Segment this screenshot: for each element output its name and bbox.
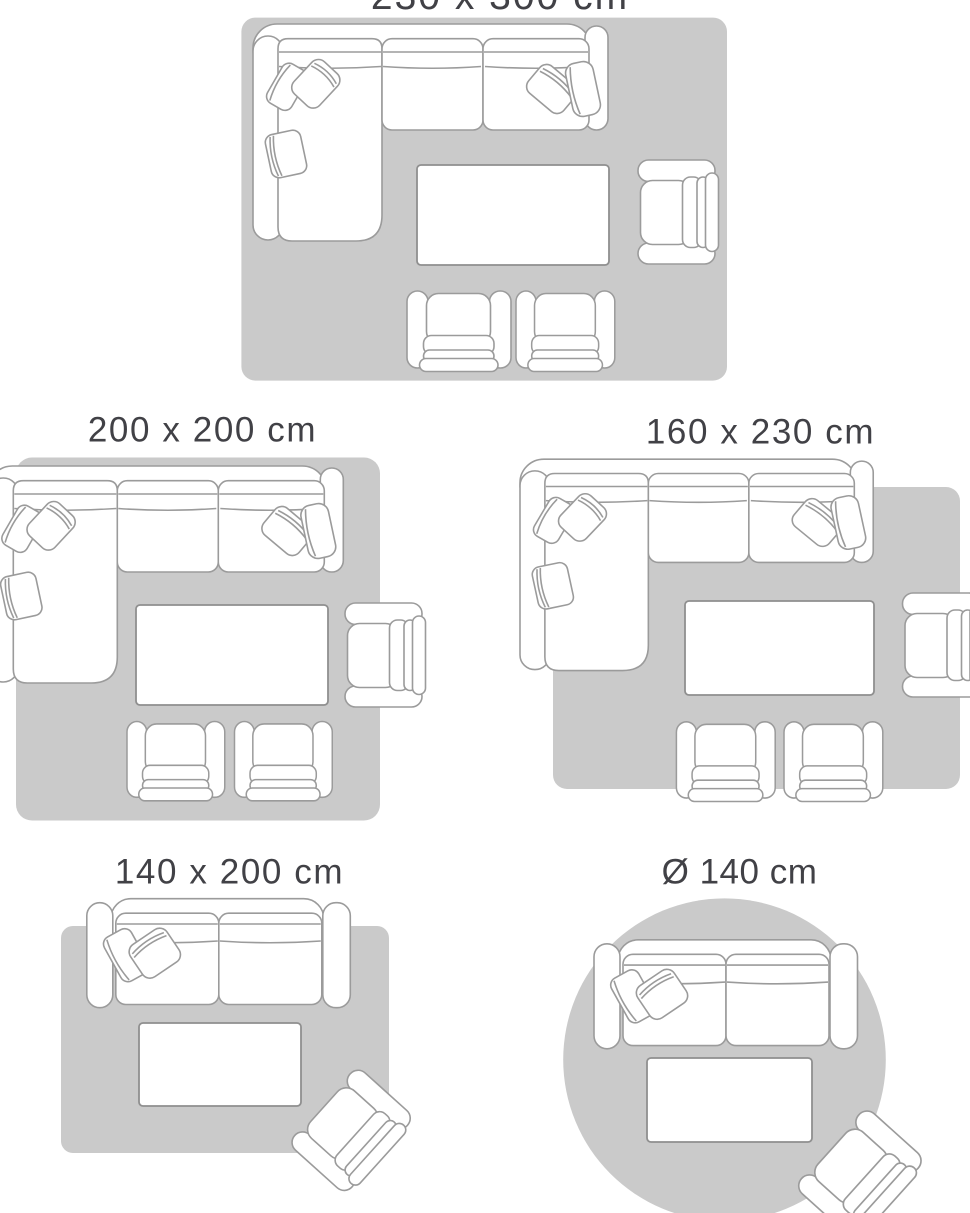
svg-text:160 x 230 cm: 160 x 230 cm	[646, 413, 875, 452]
svg-text:Ø 140 cm: Ø 140 cm	[662, 853, 818, 892]
svg-text:230 x 300 cm: 230 x 300 cm	[371, 0, 629, 18]
svg-text:140 x 200 cm: 140 x 200 cm	[115, 853, 344, 892]
svg-text:200 x 200 cm: 200 x 200 cm	[88, 411, 317, 450]
